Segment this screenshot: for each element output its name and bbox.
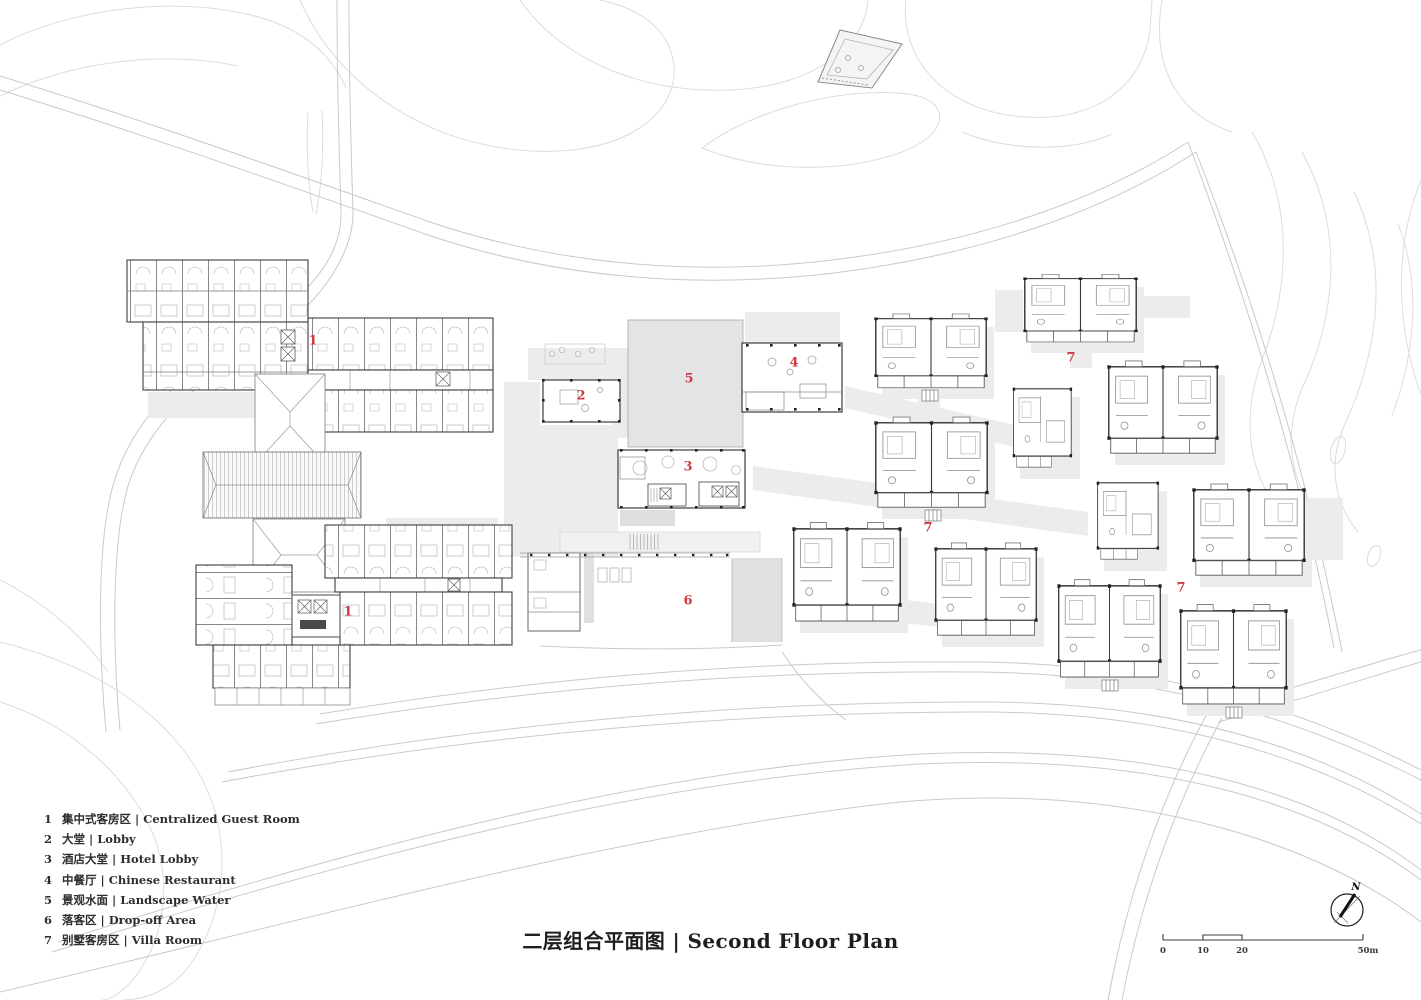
legend-item-number: 1	[44, 812, 62, 826]
legend-item-number: 2	[44, 832, 62, 846]
landscape-water	[628, 320, 743, 447]
building-hotel-lobby	[618, 449, 745, 509]
legend-item-label: 大堂 | Lobby	[62, 831, 136, 847]
triangle-structure	[818, 30, 902, 88]
legend-item-number: 5	[44, 893, 62, 907]
legend-item-label: 酒店大堂 | Hotel Lobby	[62, 851, 198, 867]
service-block	[528, 553, 580, 631]
legend-item-label: 中餐厅 | Chinese Restaurant	[62, 872, 236, 888]
guest-wing-lower	[196, 525, 512, 705]
legend-item: 4中餐厅 | Chinese Restaurant	[44, 870, 300, 890]
legend-item-number: 3	[44, 852, 62, 866]
legend-item-label: 集中式客房区 | Centralized Guest Room	[62, 811, 300, 827]
legend-item-number: 4	[44, 873, 62, 887]
building-restaurant	[742, 343, 842, 412]
drawing-title: 二层组合平面图 | Second Floor Plan	[0, 925, 1421, 954]
legend-item: 1集中式客房区 | Centralized Guest Room	[44, 809, 300, 829]
legend-item: 2大堂 | Lobby	[44, 829, 300, 849]
north-compass-icon: N	[1331, 882, 1363, 926]
north-label: N	[1350, 882, 1361, 893]
legend-item-label: 景观水面 | Landscape Water	[62, 892, 230, 908]
legend-item: 5景观水面 | Landscape Water	[44, 890, 300, 910]
legend-item: 3酒店大堂 | Hotel Lobby	[44, 849, 300, 869]
sheet: 0 10 20 50m N 1254737167 1集中式客房区 | Centr…	[0, 0, 1421, 1000]
